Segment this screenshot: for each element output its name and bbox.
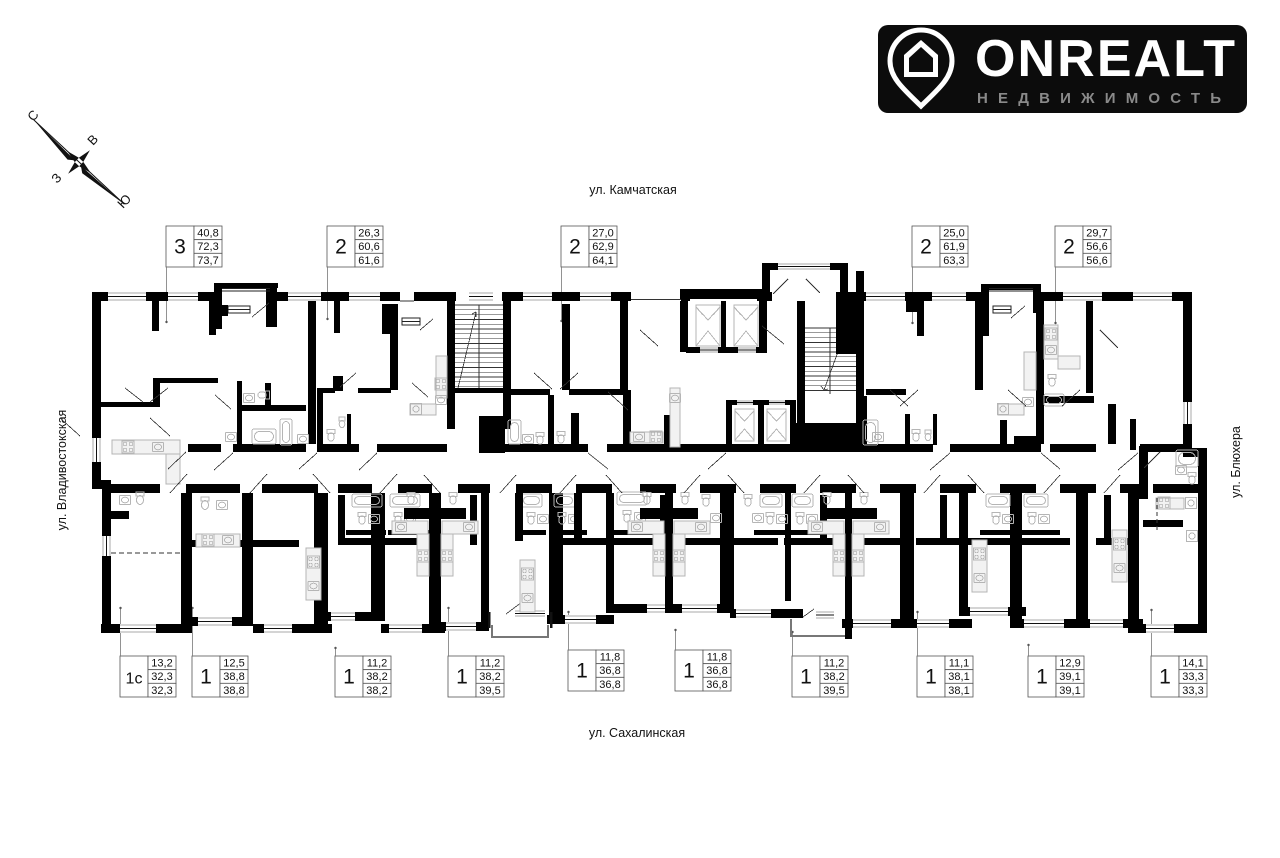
svg-text:38,8: 38,8	[223, 671, 244, 683]
svg-text:ул. Владивостокская: ул. Владивостокская	[55, 410, 69, 531]
svg-text:ул. Блюхера: ул. Блюхера	[1229, 426, 1243, 498]
svg-text:1: 1	[1036, 666, 1048, 689]
svg-text:29,7: 29,7	[1086, 228, 1107, 240]
svg-text:1: 1	[1159, 666, 1171, 689]
svg-text:56,6: 56,6	[1086, 255, 1107, 267]
svg-text:12,9: 12,9	[1059, 658, 1080, 670]
svg-text:2: 2	[1063, 236, 1075, 259]
svg-text:25,0: 25,0	[943, 228, 964, 240]
svg-text:1: 1	[343, 666, 355, 689]
svg-text:11,2: 11,2	[367, 658, 388, 670]
svg-text:61,9: 61,9	[943, 241, 964, 253]
svg-text:60,6: 60,6	[358, 241, 379, 253]
svg-text:39,1: 39,1	[1059, 685, 1080, 697]
svg-text:63,3: 63,3	[943, 255, 964, 267]
svg-text:11,2: 11,2	[480, 658, 501, 670]
svg-text:38,2: 38,2	[823, 671, 844, 683]
svg-text:32,3: 32,3	[151, 685, 172, 697]
svg-text:2: 2	[335, 236, 347, 259]
svg-text:38,1: 38,1	[948, 671, 969, 683]
svg-text:11,2: 11,2	[824, 658, 845, 670]
svg-text:72,3: 72,3	[197, 241, 218, 253]
svg-text:1: 1	[576, 660, 588, 683]
svg-text:61,6: 61,6	[358, 255, 379, 267]
svg-text:38,8: 38,8	[223, 685, 244, 697]
svg-text:73,7: 73,7	[197, 255, 218, 267]
svg-text:38,2: 38,2	[479, 671, 500, 683]
svg-text:ул. Сахалинская: ул. Сахалинская	[589, 726, 685, 740]
svg-text:1с: 1с	[126, 671, 143, 688]
svg-text:32,3: 32,3	[151, 671, 172, 683]
svg-text:36,8: 36,8	[599, 679, 620, 691]
svg-text:33,3: 33,3	[1182, 685, 1203, 697]
svg-text:36,8: 36,8	[599, 665, 620, 677]
svg-text:2: 2	[569, 236, 581, 259]
svg-text:1: 1	[925, 666, 937, 689]
svg-text:13,2: 13,2	[151, 658, 172, 670]
svg-text:1: 1	[200, 666, 212, 689]
svg-text:14,1: 14,1	[1182, 658, 1203, 670]
svg-text:11,8: 11,8	[707, 652, 728, 664]
svg-text:39,5: 39,5	[823, 685, 844, 697]
svg-text:ONREALT: ONREALT	[975, 30, 1237, 88]
svg-text:1: 1	[456, 666, 468, 689]
svg-text:36,8: 36,8	[706, 679, 727, 691]
svg-text:26,3: 26,3	[358, 228, 379, 240]
svg-text:1: 1	[800, 666, 812, 689]
svg-text:39,1: 39,1	[1059, 671, 1080, 683]
svg-text:3: 3	[174, 236, 186, 259]
svg-text:64,1: 64,1	[592, 255, 613, 267]
svg-text:11,8: 11,8	[600, 652, 621, 664]
svg-text:62,9: 62,9	[592, 241, 613, 253]
svg-text:12,5: 12,5	[223, 658, 244, 670]
svg-text:40,8: 40,8	[197, 228, 218, 240]
svg-text:38,2: 38,2	[366, 671, 387, 683]
svg-text:39,5: 39,5	[479, 685, 500, 697]
svg-text:ул. Камчатская: ул. Камчатская	[589, 183, 677, 197]
svg-text:1: 1	[683, 660, 695, 683]
svg-text:38,1: 38,1	[948, 685, 969, 697]
svg-text:33,3: 33,3	[1182, 671, 1203, 683]
svg-text:38,2: 38,2	[366, 685, 387, 697]
svg-text:36,8: 36,8	[706, 665, 727, 677]
svg-text:2: 2	[920, 236, 932, 259]
svg-text:27,0: 27,0	[592, 228, 613, 240]
svg-text:11,1: 11,1	[949, 658, 970, 670]
svg-text:56,6: 56,6	[1086, 241, 1107, 253]
